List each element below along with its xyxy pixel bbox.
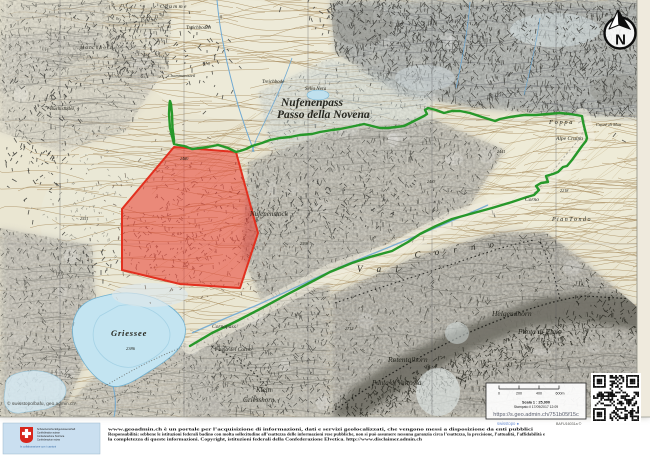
svg-text:0: 0: [498, 392, 500, 396]
svg-text:2598: 2598: [300, 241, 309, 246]
svg-text:Treichboden: Treichboden: [186, 26, 211, 31]
svg-text:Stampato il 17/09/2017 12:09: Stampato il 17/09/2017 12:09: [514, 405, 558, 409]
svg-text:Punta di Valrossa: Punta di Valrossa: [371, 379, 422, 387]
svg-text:Büchistadel: Büchistadel: [50, 107, 74, 112]
svg-text:C h u m m e: C h u m m e: [160, 4, 187, 10]
svg-text:Helgendhorn: Helgendhorn: [491, 309, 532, 318]
svg-text:2441: 2441: [497, 149, 505, 154]
svg-text:2386: 2386: [126, 346, 136, 351]
svg-text:Rotentalhorn: Rotentalhorn: [387, 355, 428, 364]
svg-text:2480: 2480: [180, 156, 189, 161]
svg-text:© swisstopo/bafu, geo.admin.ch: © swisstopo/bafu, geo.admin.ch: [7, 400, 75, 407]
svg-text:F o p p a: F o p p a: [548, 119, 572, 126]
svg-text:600m: 600m: [556, 392, 565, 396]
svg-text:Griessee: Griessee: [111, 328, 147, 338]
svg-text:Punta di Elgio: Punta di Elgio: [517, 327, 562, 336]
svg-text:200: 200: [516, 392, 522, 396]
svg-text:Griesshorn: Griesshorn: [243, 396, 275, 404]
svg-text:https://s.geo.admin.ch/751b05f: https://s.geo.admin.ch/751b05f15c: [493, 412, 579, 418]
svg-text:Corno: Corno: [525, 197, 539, 203]
svg-text:N: N: [615, 32, 626, 49]
svg-text:Confederaziun svizra: Confederaziun svizra: [37, 439, 61, 442]
svg-text:Passo del Corno: Passo del Corno: [214, 347, 252, 353]
svg-text:Treichbode: Treichbode: [262, 80, 285, 85]
svg-text:M a r c h h o r n: M a r c h h o r n: [79, 46, 113, 51]
svg-text:Scala 1 : 25,000: Scala 1 : 25,000: [522, 401, 550, 405]
svg-text:Alpe Cruina: Alpe Cruina: [555, 136, 583, 142]
svg-text:swisstopo ●: swisstopo ●: [497, 421, 520, 426]
svg-text:2483: 2483: [427, 179, 435, 184]
svg-text:Nufenenstock: Nufenenstock: [249, 210, 289, 218]
svg-text:2551: 2551: [80, 216, 88, 221]
svg-text:Cuorè di Mon: Cuorè di Mon: [596, 122, 622, 127]
svg-text:la completezza di queste infor: la completezza di queste informazioni. C…: [108, 437, 423, 442]
svg-text:2218: 2218: [560, 188, 569, 193]
svg-text:Passo della Novena: Passo della Novena: [277, 109, 370, 121]
svg-text:400: 400: [536, 392, 542, 396]
svg-text:In collaborazione con i canton: In collaborazione con i cantoni: [20, 445, 57, 449]
svg-text:V a l: V a l: [357, 264, 404, 274]
svg-text:P i a n T o n d o: P i a n T o n d o: [551, 217, 590, 223]
svg-text:Cornopass: Cornopass: [212, 324, 236, 330]
svg-text:Chammantsteil: Chammantsteil: [168, 73, 196, 78]
svg-text:Klein: Klein: [255, 386, 272, 394]
svg-text:Sella Nera: Sella Nera: [305, 87, 327, 92]
svg-text:BAFU16031a ©: BAFU16031a ©: [556, 422, 582, 426]
svg-text:2712: 2712: [345, 326, 353, 331]
svg-text:Nufenenpass: Nufenenpass: [280, 97, 344, 109]
